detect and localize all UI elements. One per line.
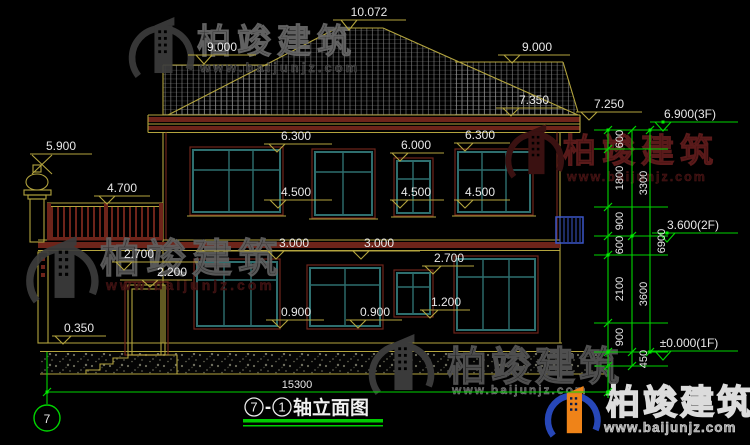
dim-label: 5.900 bbox=[46, 139, 76, 153]
dim-label: 10.072 bbox=[351, 5, 388, 19]
dim-label: 2.200 bbox=[157, 265, 187, 279]
porch-railing bbox=[47, 203, 163, 241]
watermark-url: www.baijunjz.com bbox=[105, 277, 275, 293]
dim-ridge-right: 9.000 bbox=[498, 40, 570, 63]
dim-terrace: 0.350 bbox=[52, 321, 106, 344]
porch-finial bbox=[24, 165, 51, 242]
dim-label: 3.000 bbox=[364, 236, 394, 250]
chain-label: 3300 bbox=[638, 171, 650, 195]
dim-railing: 4.700 bbox=[94, 181, 150, 204]
chain-label: 900 bbox=[614, 212, 626, 230]
chain-label: 450 bbox=[638, 350, 650, 368]
dim-label: 7.350 bbox=[519, 93, 549, 107]
chain-label: 6900 bbox=[656, 229, 668, 253]
dim-win1-sills: 0.900 0.900 1.200 bbox=[266, 295, 470, 328]
dim-label: 15300 bbox=[282, 379, 313, 391]
cornice bbox=[148, 115, 580, 133]
drawing-title: 7 - 1 轴立面图 bbox=[243, 396, 383, 427]
dim-label: 7.250 bbox=[594, 97, 624, 111]
title-underline-thick bbox=[243, 419, 383, 423]
dim-label: 4.500 bbox=[281, 185, 311, 199]
chain-label: 3600 bbox=[638, 282, 650, 306]
cad-elevation-drawing: 柏竣建筑 www.baijunjz.com 柏竣建筑 www.baijunjz.… bbox=[0, 0, 750, 445]
dim-win2-sills: 4.500 4.500 4.500 bbox=[264, 185, 510, 208]
dim-label: 4.700 bbox=[107, 181, 137, 195]
dim-label: 9.000 bbox=[522, 40, 552, 54]
dim-label: 9.000 bbox=[207, 40, 237, 54]
chain-label: 900 bbox=[614, 328, 626, 346]
dim-label: 6.000 bbox=[401, 138, 431, 152]
chain-label: 600 bbox=[614, 236, 626, 254]
watermark-top: 柏竣建筑 www.baijunjz.com bbox=[132, 17, 360, 76]
window-2f-b bbox=[309, 149, 378, 219]
level-marker-1f: ±0.000(1F) bbox=[648, 336, 738, 360]
axis-bubble: 7 bbox=[34, 405, 60, 431]
porch-column bbox=[38, 252, 48, 343]
title-axis-to: 1 bbox=[278, 400, 285, 415]
title-dash: - bbox=[265, 397, 271, 418]
window-1f-b bbox=[307, 265, 383, 329]
title-axis-from: 7 bbox=[250, 400, 257, 415]
dim-label: 2.700 bbox=[434, 251, 464, 265]
dim-finial: 5.900 bbox=[30, 139, 92, 174]
dim-label: 6.300 bbox=[281, 129, 311, 143]
level-label: 6.900(3F) bbox=[664, 107, 716, 121]
dim-label: 0.900 bbox=[281, 305, 311, 319]
watermark-url: www.baijunjz.com bbox=[566, 170, 707, 184]
watermark-brand: 柏竣建筑 bbox=[606, 383, 750, 422]
window-1f-d bbox=[454, 256, 538, 333]
downspout-unit bbox=[556, 217, 583, 243]
watermark-brand: 柏竣建筑 bbox=[563, 132, 719, 169]
level-label: ±0.000(1F) bbox=[660, 336, 719, 350]
window-2f-d bbox=[452, 149, 536, 216]
dim-label: 1.200 bbox=[431, 295, 461, 309]
dim-label: 4.500 bbox=[401, 185, 431, 199]
dim-label: 3.000 bbox=[279, 236, 309, 250]
watermark-url: www.baijunjz.com bbox=[199, 60, 360, 75]
level-marker-3f: 6.900(3F) bbox=[650, 107, 738, 131]
dim-label: 0.900 bbox=[360, 305, 390, 319]
dim-label: 4.500 bbox=[465, 185, 495, 199]
chain-label: 2100 bbox=[614, 277, 626, 301]
dim-eave: 7.250 bbox=[576, 97, 642, 120]
watermark-url: www.baijunjz.com bbox=[603, 420, 737, 435]
chain-label: 600 bbox=[614, 130, 626, 148]
dim-label: 2.700 bbox=[124, 247, 154, 261]
chain-label: 1800 bbox=[614, 166, 626, 190]
dim-label: 6.300 bbox=[465, 128, 495, 142]
title-underline-thin bbox=[243, 425, 383, 427]
title-text: 轴立面图 bbox=[293, 396, 369, 419]
watermark-bottom-right: 柏竣建筑 www.baijunjz.com bbox=[548, 383, 750, 436]
axis-number: 7 bbox=[44, 412, 51, 426]
drawing-canvas: 柏竣建筑 www.baijunjz.com 柏竣建筑 www.baijunjz.… bbox=[0, 0, 750, 445]
dim-label: 0.350 bbox=[64, 321, 94, 335]
level-label: 3.600(2F) bbox=[667, 218, 719, 232]
window-2f-a bbox=[187, 147, 286, 216]
